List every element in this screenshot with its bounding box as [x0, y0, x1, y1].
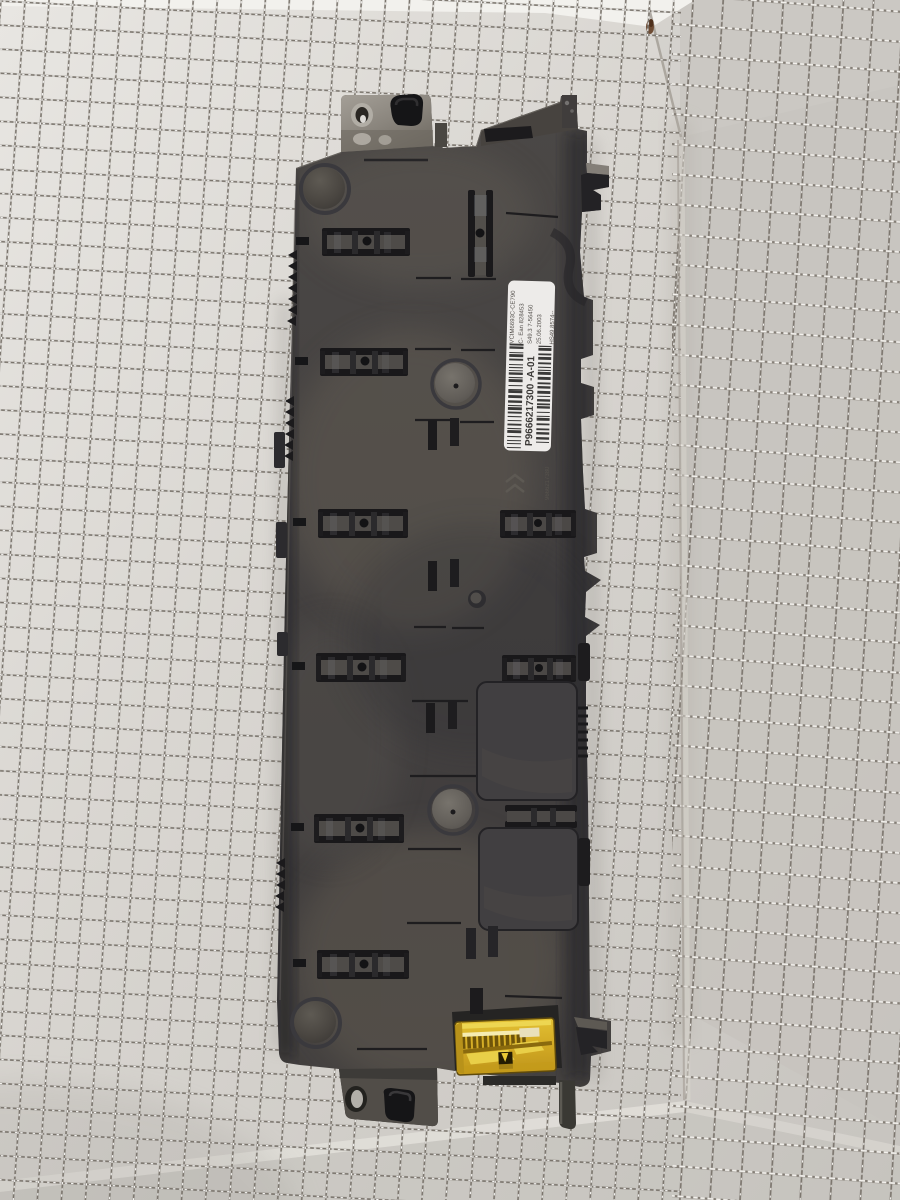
svg-text:9666217380: 9666217380 [545, 466, 551, 500]
svg-text:HS49.8574--: HS49.8574-- [550, 310, 557, 344]
svg-text:S49.3 7-56450: S49.3 7-56450 [528, 304, 535, 344]
svg-text:25.06.2003: 25.06.2003 [537, 313, 544, 344]
svg-text:C- Ean 828453: C- Ean 828453 [519, 303, 526, 344]
